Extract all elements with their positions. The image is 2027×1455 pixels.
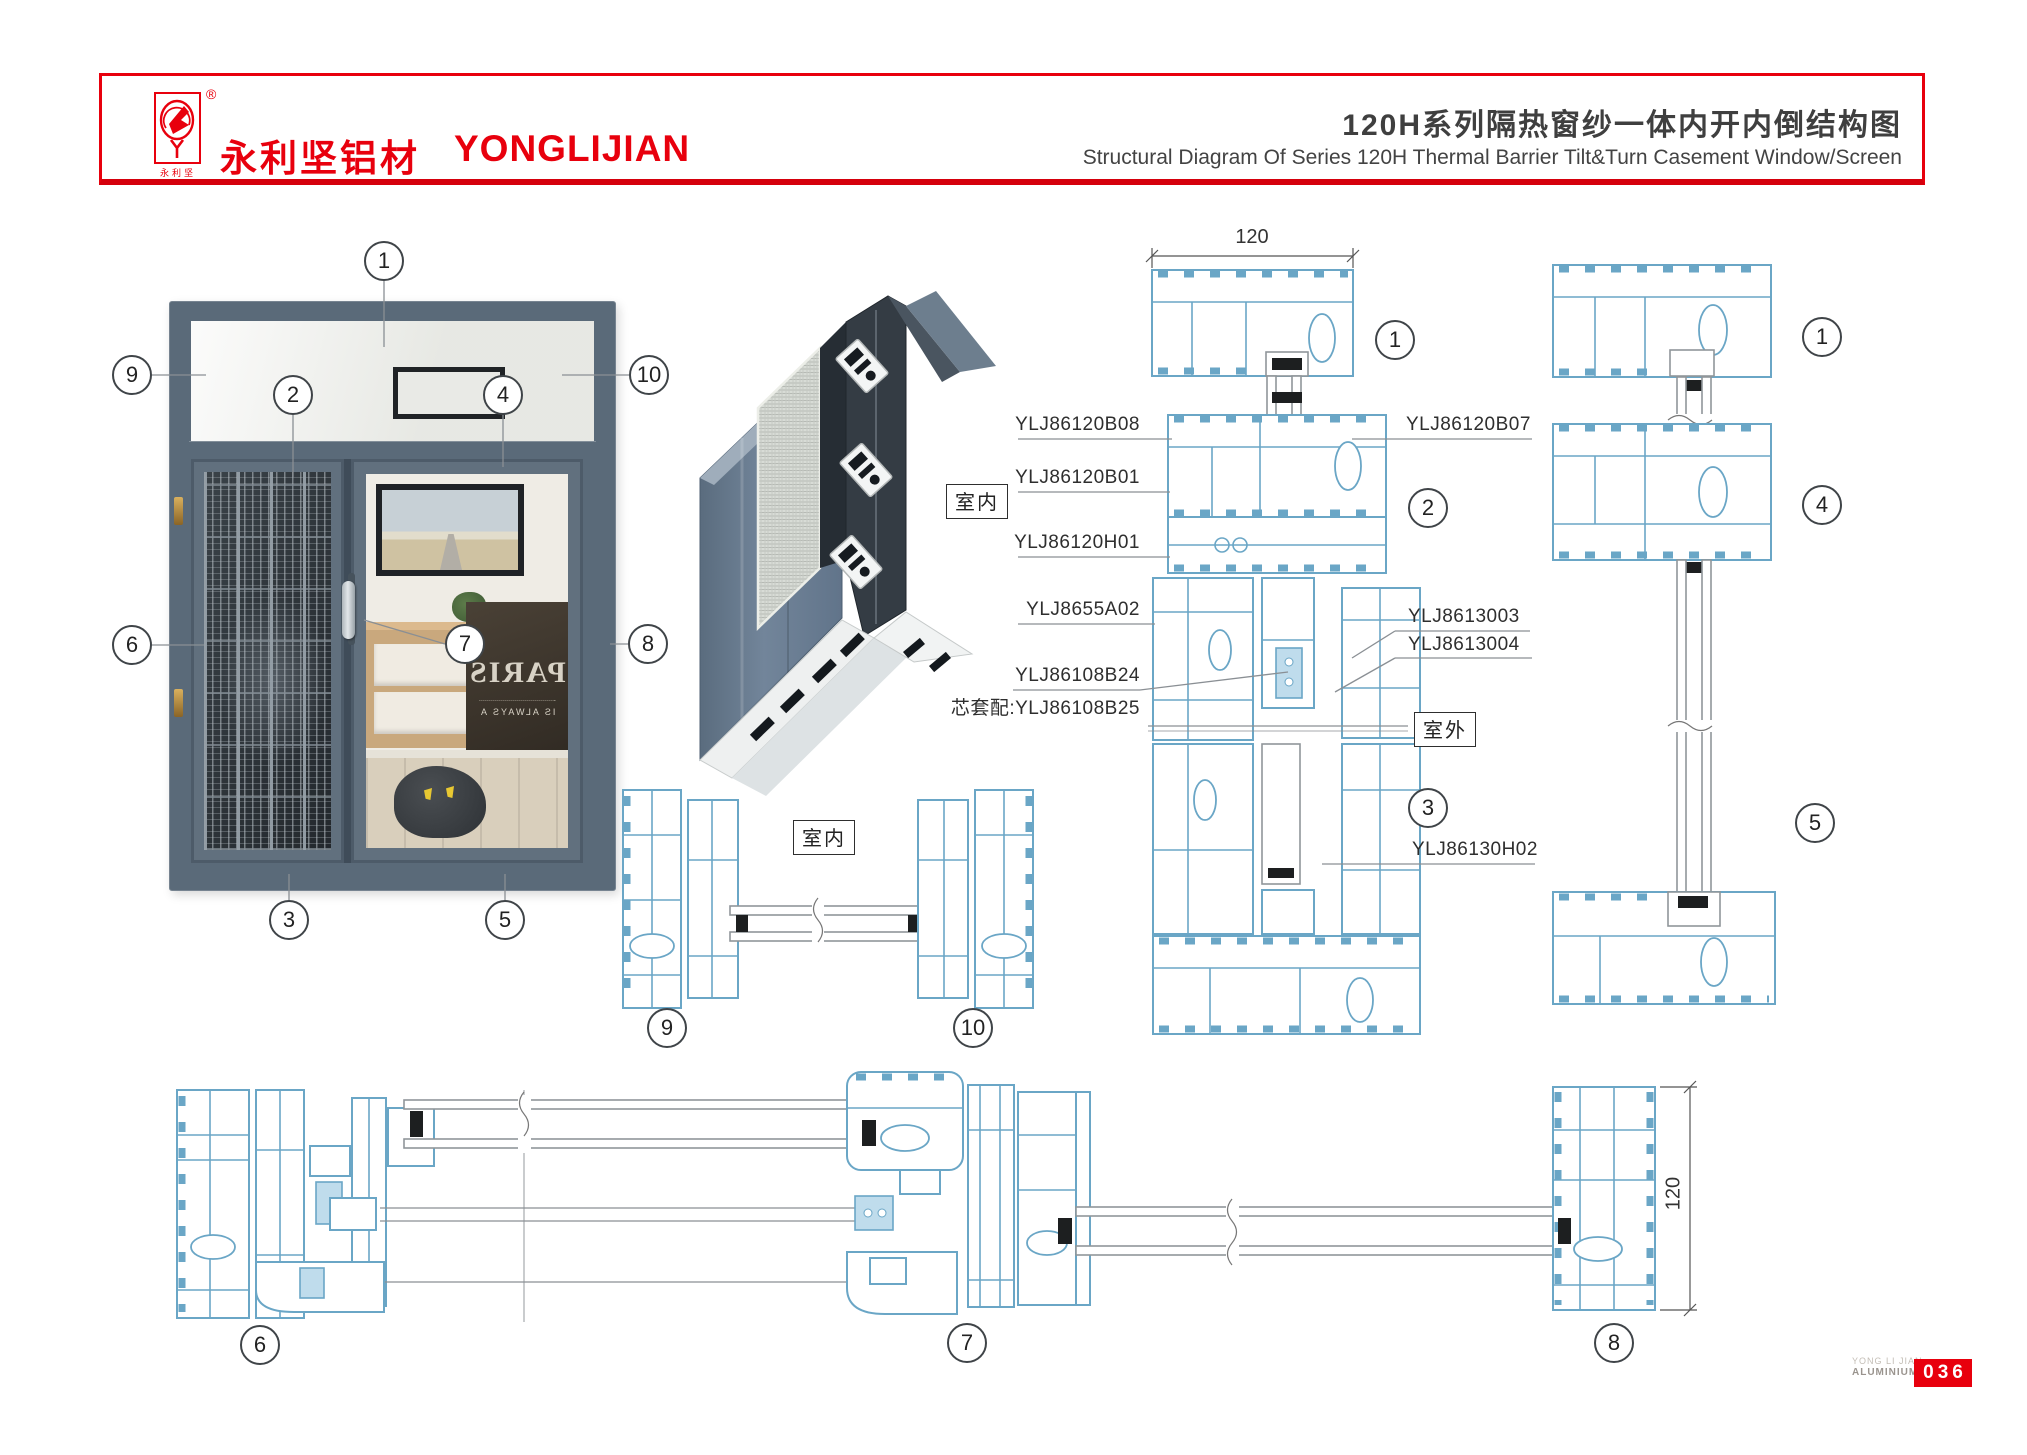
callout-number: 1 — [1816, 324, 1828, 350]
callout-3-elevation: 3 — [269, 900, 309, 940]
footer-brand: YONG LI JIAN ALUMINIUM — [1852, 1356, 1923, 1380]
transom-rail — [189, 441, 596, 459]
drawer — [374, 692, 474, 734]
section-stack-right — [1553, 265, 1775, 1004]
callout-number: 7 — [961, 1330, 973, 1356]
logo-caption: 永利坚 — [150, 166, 206, 179]
poster-text-main: PARIS — [468, 656, 566, 690]
window-handle — [342, 581, 355, 639]
callout-4-section-right: 4 — [1802, 485, 1842, 525]
callout-9-elevation: 9 — [112, 355, 152, 395]
part-label: YLJ8655A02 — [940, 599, 1140, 621]
road-photo — [440, 534, 462, 570]
poster-text-sub: IS ALWAYS A — [479, 700, 555, 717]
callout-10-section: 10 — [953, 1008, 993, 1048]
registered-mark: ® — [206, 86, 216, 102]
callout-6-section: 6 — [240, 1325, 280, 1365]
callout-number: 2 — [287, 382, 299, 408]
callout-number: 3 — [283, 907, 295, 933]
part-label: YLJ86108B24 — [940, 665, 1140, 687]
baseboard — [366, 750, 568, 758]
callout-number: 9 — [126, 362, 138, 388]
callout-5-elevation: 5 — [485, 900, 525, 940]
callout-number: 3 — [1422, 795, 1434, 821]
dimension-head-width: 120 — [1224, 226, 1280, 249]
part-label: YLJ8613003 — [1408, 606, 1520, 628]
callout-1-section-center: 1 — [1375, 320, 1415, 360]
callout-number: 1 — [1389, 327, 1401, 353]
bag-eye-mark — [446, 786, 454, 798]
callout-9-section: 9 — [647, 1008, 687, 1048]
hinge-bottom — [174, 689, 183, 717]
leaf-junction — [344, 459, 351, 863]
screen-casement-leaf — [191, 459, 344, 863]
callout-10-elevation: 10 — [629, 355, 669, 395]
paris-poster-reflection: PARIS IS ALWAYS A — [466, 602, 568, 770]
callout-6-elevation: 6 — [112, 625, 152, 665]
callout-number: 8 — [642, 631, 654, 657]
callout-5-section-right: 5 — [1795, 803, 1835, 843]
callout-number: 9 — [661, 1015, 673, 1041]
part-label: YLJ86130H02 — [1412, 839, 1538, 861]
callout-number: 4 — [497, 382, 509, 408]
outdoor-tag: 室外 — [1414, 712, 1476, 747]
part-label: YLJ86120B08 — [940, 414, 1140, 436]
security-mesh — [204, 472, 331, 850]
logo-swirl-icon — [156, 94, 199, 162]
callout-7-elevation: 7 — [445, 624, 485, 664]
catalog-page: ® 永利坚 永利坚铝材 YONGLIJIAN 120H系列隔热窗纱一体内开内倒结… — [0, 0, 2027, 1455]
callout-number: 6 — [126, 632, 138, 658]
indoor-tag-render: 室内 — [946, 484, 1008, 519]
dimension-frame-depth: 120 — [1663, 1166, 1686, 1222]
part-label: YLJ8613004 — [1408, 634, 1520, 656]
brand-name-en: YONGLIJIAN — [454, 128, 690, 170]
part-label: 芯套配:YLJ86108B25 — [940, 693, 1140, 720]
section-bottom-row — [177, 1072, 1697, 1322]
callout-number: 5 — [1809, 810, 1821, 836]
callout-number: 1 — [378, 248, 390, 274]
part-label: YLJ86120B07 — [1406, 414, 1531, 436]
callout-8-elevation: 8 — [628, 624, 668, 664]
hinge-top — [174, 497, 183, 525]
callout-1-elevation: 1 — [364, 241, 404, 281]
brand-logo — [154, 92, 201, 164]
picture-frame-reflection — [376, 484, 524, 576]
callout-3-section-center: 3 — [1408, 788, 1448, 828]
callout-2-elevation: 2 — [273, 375, 313, 415]
callout-4-elevation: 4 — [483, 375, 523, 415]
page-title: 120H系列隔热窗纱一体内开内倒结构图 — [1342, 100, 1902, 144]
callout-number: 8 — [1608, 1330, 1620, 1356]
brand-name-cn: 永利坚铝材 — [220, 128, 420, 182]
page-number-badge: 036 — [1914, 1359, 1972, 1387]
transom-fixed-glass — [191, 321, 594, 441]
callout-number: 4 — [1816, 492, 1828, 518]
callout-number: 6 — [254, 1332, 266, 1358]
indoor-tag-section: 室内 — [793, 820, 855, 855]
window-elevation-render: PARIS IS ALWAYS A — [169, 301, 616, 891]
callout-7-section: 7 — [947, 1323, 987, 1363]
bag-eye-mark — [424, 788, 432, 800]
callout-1-section-right: 1 — [1802, 317, 1842, 357]
footer-brand-bottom: ALUMINIUM — [1852, 1367, 1923, 1380]
callout-number: 10 — [637, 362, 661, 388]
part-label: YLJ86120H01 — [940, 532, 1140, 554]
callout-number: 2 — [1422, 495, 1434, 521]
callout-number: 7 — [459, 631, 471, 657]
header-band: ® 永利坚 永利坚铝材 YONGLIJIAN 120H系列隔热窗纱一体内开内倒结… — [99, 73, 1925, 185]
callout-8-section: 8 — [1594, 1323, 1634, 1363]
footer-brand-top: YONG LI JIAN — [1852, 1356, 1923, 1367]
callout-number: 10 — [961, 1015, 985, 1041]
callout-number: 5 — [499, 907, 511, 933]
callout-2-section-center: 2 — [1408, 488, 1448, 528]
page-subtitle: Structural Diagram Of Series 120H Therma… — [1083, 146, 1902, 170]
